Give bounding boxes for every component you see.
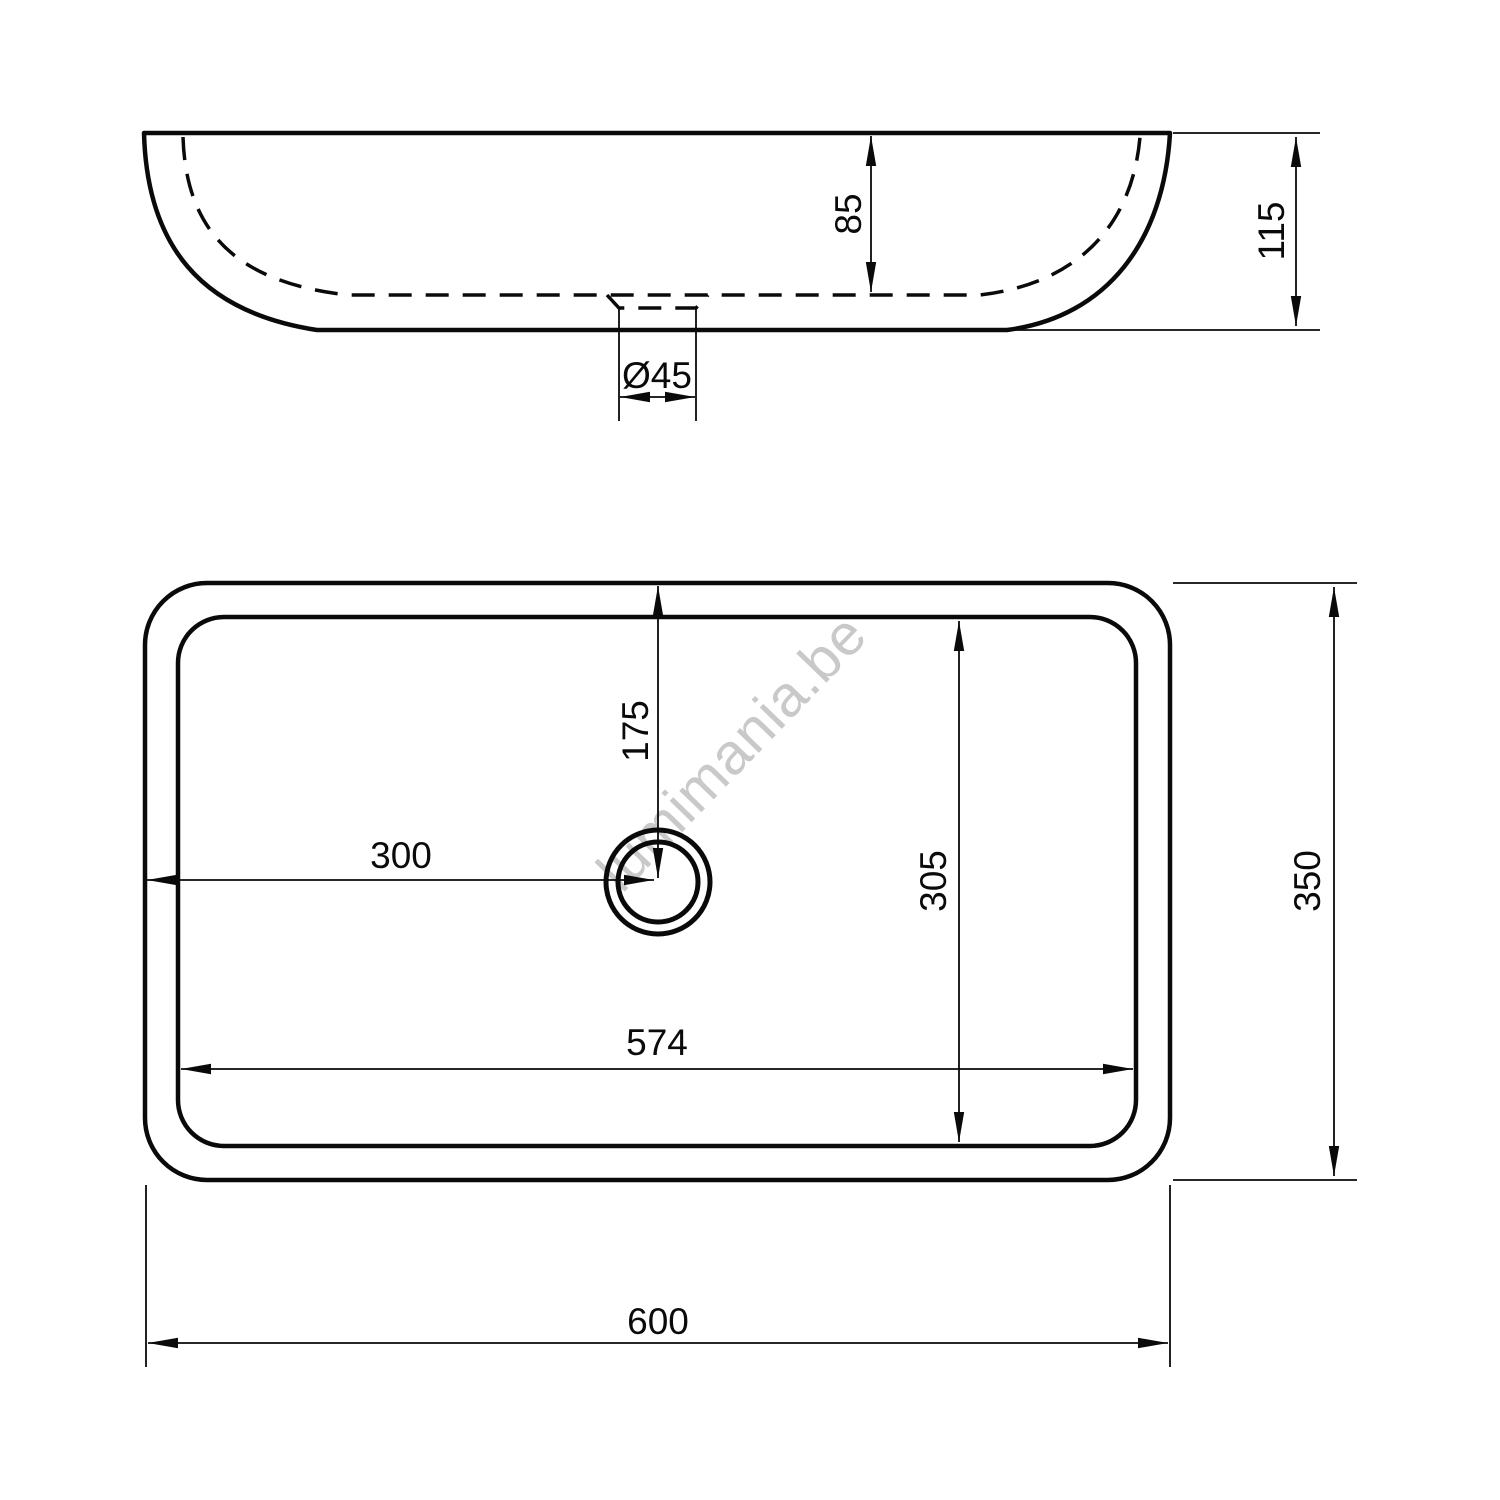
dim-text-overall-depth: 350	[1287, 850, 1328, 912]
dim-text-inner-depth: 85	[828, 193, 869, 234]
dim-text-drain-from-top: 175	[615, 700, 656, 762]
drain-recess-dashed	[607, 295, 708, 308]
dim-text-overall-length: 600	[627, 1301, 689, 1342]
plan-inner-basin-edge	[178, 617, 1136, 1146]
dim-text-drain-diameter: Ø45	[622, 355, 692, 396]
side-elevation-view: Ø45 85 115	[144, 133, 1320, 421]
washbasin-dimension-drawing: lumimania.be Ø45 85 115	[0, 0, 1500, 1500]
dim-text-overall-height: 115	[1251, 202, 1292, 261]
technical-drawing-page: lumimania.be Ø45 85 115	[0, 0, 1500, 1500]
side-inner-bowl-dashed	[183, 137, 1140, 295]
side-outer-profile	[144, 133, 1170, 330]
dim-text-drain-from-left: 300	[370, 835, 432, 876]
dim-text-inner-basin-length: 574	[626, 1022, 688, 1063]
dim-text-inner-basin-width: 305	[913, 850, 954, 912]
